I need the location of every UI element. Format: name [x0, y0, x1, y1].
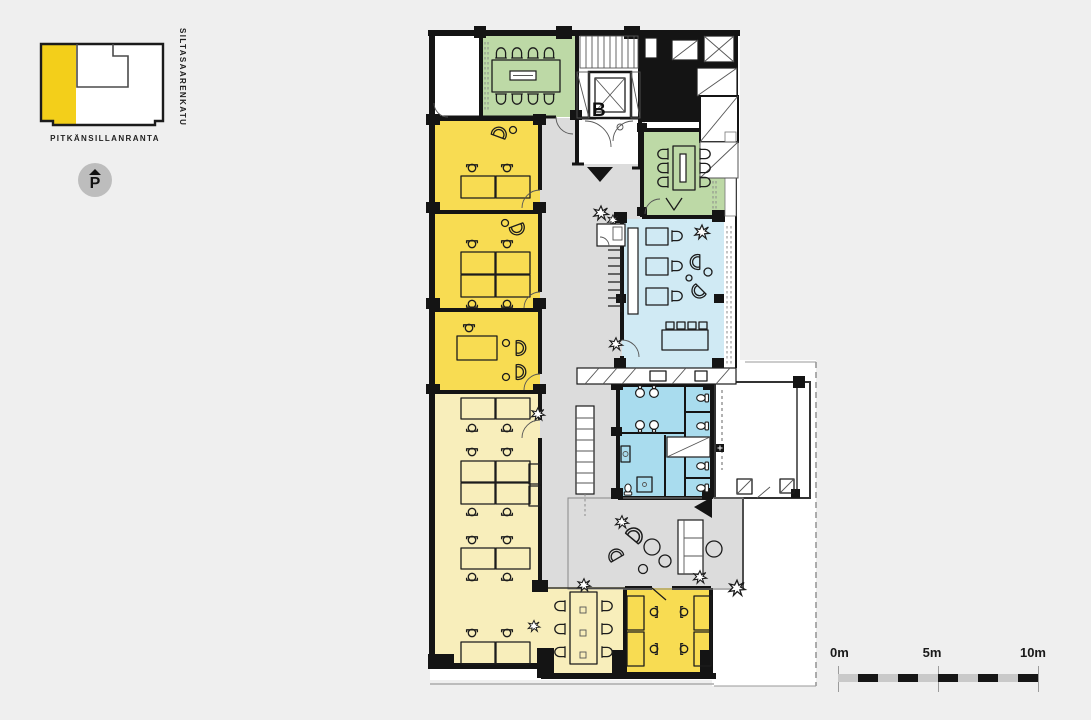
street-label-pitkansillanranta: PITKÄNSILLANRANTA — [28, 134, 182, 143]
scale-bar: 0m 5m 10m — [830, 645, 1046, 695]
floor-plan — [425, 22, 855, 692]
office-room-3 — [434, 310, 540, 392]
entrance-vestibule — [577, 118, 640, 164]
scale-label-5m: 5m — [923, 645, 942, 660]
up-arrow-icon — [89, 169, 101, 175]
parking-icon: P — [90, 176, 101, 192]
shelving-unit — [576, 406, 594, 494]
open-office — [434, 392, 540, 666]
street-label-siltasaarenkatu: SILTASAARENKATU — [178, 28, 187, 140]
scale-bar-line — [838, 674, 1038, 682]
scale-label-10m: 10m — [1020, 645, 1046, 660]
sofa — [678, 520, 703, 574]
parking-direction-badge: P — [78, 163, 112, 197]
scale-tick-10 — [1038, 666, 1039, 692]
page: PITKÄNSILLANRANTA SILTASAARENKATU P — [0, 0, 1091, 720]
scale-label-0m: 0m — [830, 645, 849, 660]
location-key-map — [30, 36, 180, 136]
stairwell-label: B — [592, 100, 606, 122]
key-map-highlight — [41, 44, 76, 125]
